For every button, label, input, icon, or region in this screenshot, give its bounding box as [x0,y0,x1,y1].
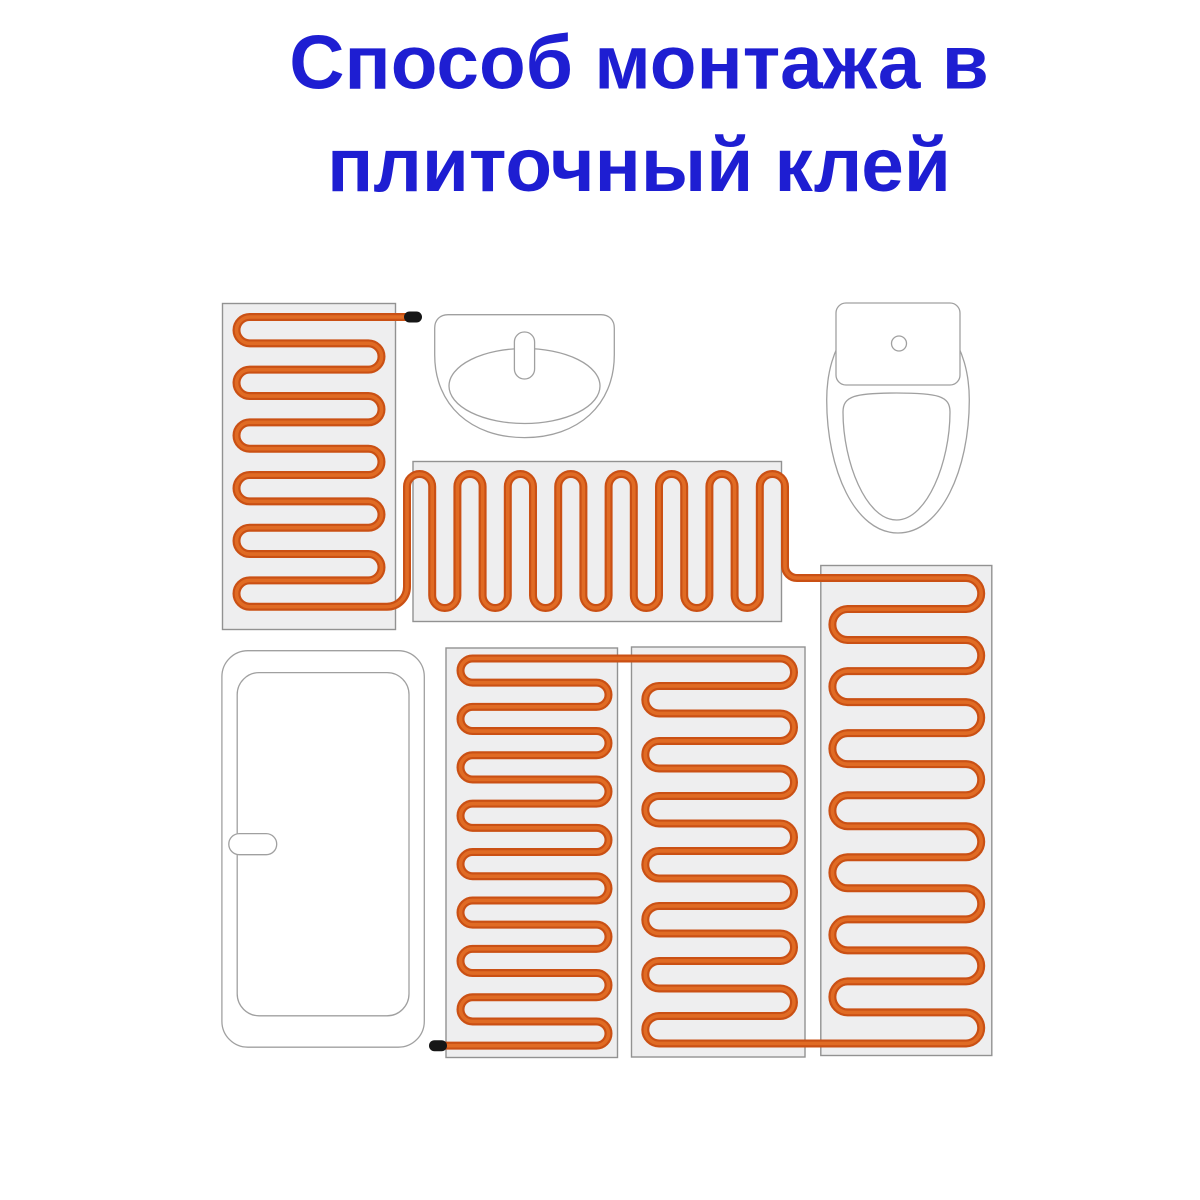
svg-text:Способ монтажа в: Способ монтажа в [289,21,988,106]
svg-text:плиточный клей: плиточный клей [327,123,951,208]
